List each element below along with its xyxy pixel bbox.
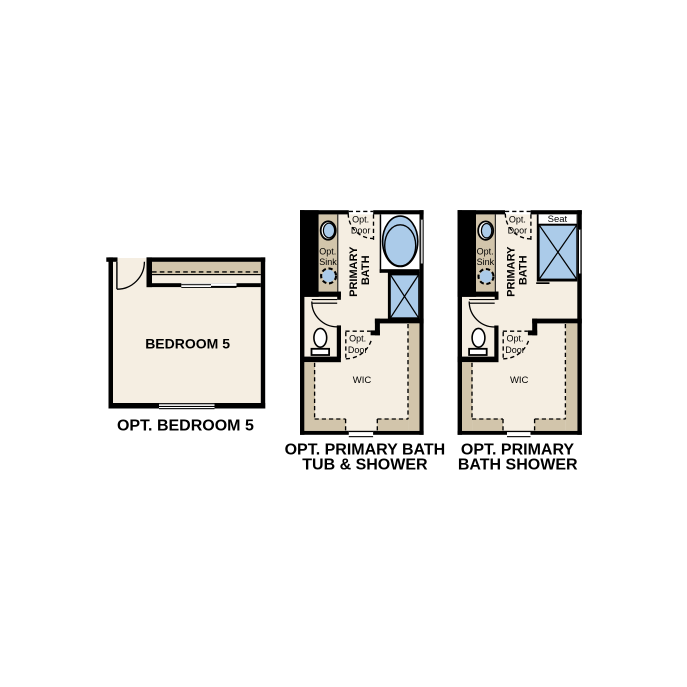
svg-text:Seat: Seat bbox=[548, 214, 568, 225]
svg-text:Sink: Sink bbox=[319, 257, 337, 267]
svg-text:Opt.: Opt. bbox=[509, 215, 526, 225]
svg-text:BEDROOM 5: BEDROOM 5 bbox=[145, 336, 230, 352]
svg-text:PRIMARY: PRIMARY bbox=[348, 246, 360, 297]
svg-text:Opt.: Opt. bbox=[319, 246, 336, 256]
svg-text:WIC: WIC bbox=[353, 375, 372, 386]
svg-text:WIC: WIC bbox=[510, 375, 529, 386]
svg-text:Sink: Sink bbox=[477, 257, 495, 267]
svg-text:TUB & SHOWER: TUB & SHOWER bbox=[302, 457, 428, 474]
svg-text:Opt.: Opt. bbox=[506, 334, 523, 344]
svg-text:BATH: BATH bbox=[517, 255, 529, 285]
svg-text:Opt.: Opt. bbox=[477, 246, 494, 256]
svg-text:Door: Door bbox=[351, 226, 371, 236]
svg-text:Door: Door bbox=[348, 345, 368, 355]
svg-text:Opt.: Opt. bbox=[349, 334, 366, 344]
svg-text:Door: Door bbox=[505, 345, 525, 355]
svg-text:Opt.: Opt. bbox=[352, 215, 369, 225]
svg-text:PRIMARY: PRIMARY bbox=[506, 246, 518, 297]
svg-text:BATH: BATH bbox=[360, 255, 372, 285]
svg-text:Door: Door bbox=[508, 226, 528, 236]
svg-text:OPT. BEDROOM 5: OPT. BEDROOM 5 bbox=[117, 418, 254, 435]
svg-text:BATH SHOWER: BATH SHOWER bbox=[458, 457, 578, 474]
